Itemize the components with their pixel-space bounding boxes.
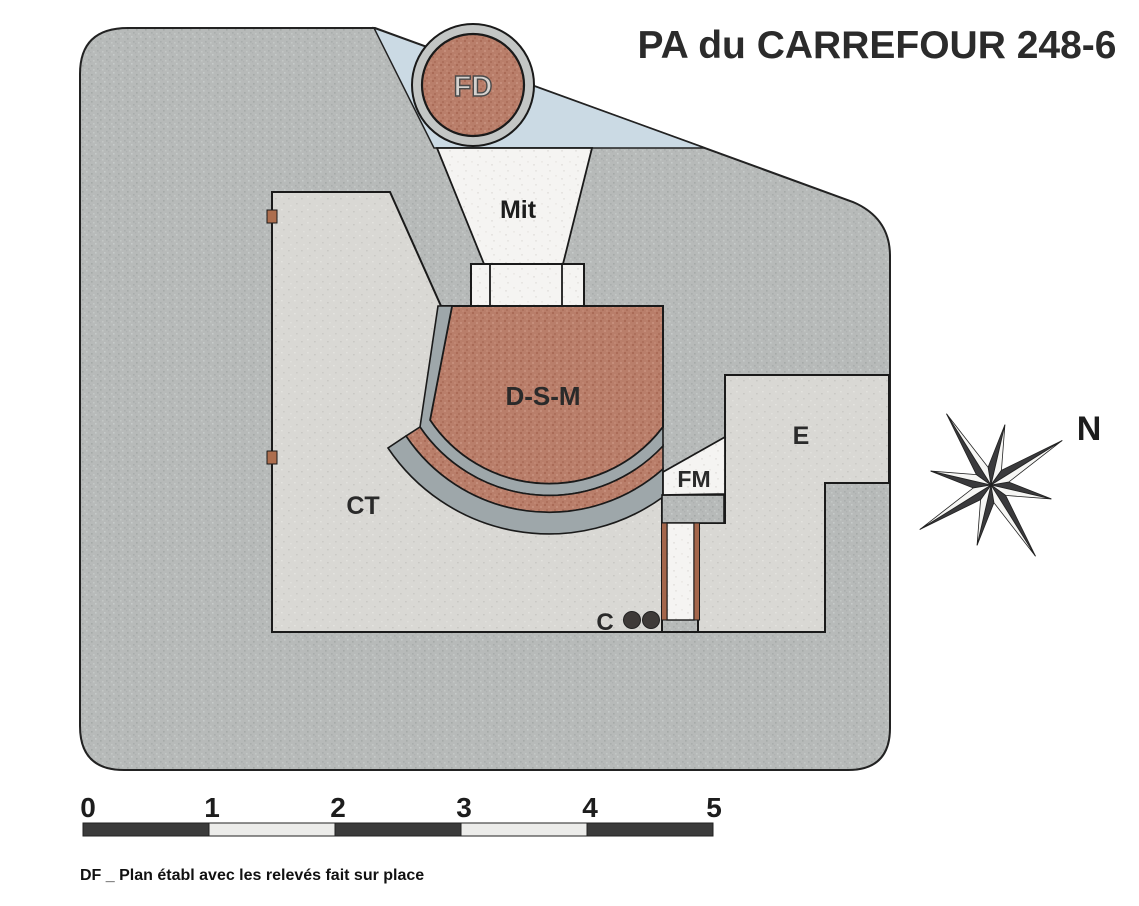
turret-assembly: [471, 264, 584, 306]
scale-tick-1: 1: [204, 792, 220, 823]
fd-label: FD: [454, 71, 493, 103]
corridor: [662, 523, 700, 632]
corridor-wall-left: [662, 523, 668, 620]
wall-fitting-2: [267, 451, 277, 464]
plan-page: FD Mit D-S-M CT FM E C N: [0, 0, 1139, 906]
ct-label: CT: [346, 492, 379, 520]
scale-bar: 0 1 2 3 4 5: [80, 792, 722, 836]
fm-block: [662, 495, 724, 523]
dsm-label: D-S-M: [505, 381, 580, 411]
vent-dot-2: [643, 612, 660, 629]
c-label: C: [596, 609, 613, 636]
fm-label: FM: [677, 466, 710, 492]
north-label: N: [1077, 410, 1102, 448]
page-title: PA du CARREFOUR 248-6: [638, 24, 1117, 67]
fd-cupola: FD: [412, 24, 534, 146]
compass-long-points: [875, 369, 1106, 600]
e-label: E: [793, 422, 810, 450]
compass-rose: [875, 369, 1106, 600]
corridor-wall-right: [694, 523, 700, 620]
corridor-floor: [667, 523, 694, 620]
wall-fitting-1: [267, 210, 277, 223]
scale-tick-2: 2: [330, 792, 346, 823]
bunker-plan-drawing: FD Mit D-S-M CT FM E C N: [0, 0, 1139, 906]
plan-caption: DF _ Plan établ avec les relevés fait su…: [80, 867, 424, 884]
scale-tick-0: 0: [80, 792, 96, 823]
scale-tick-5: 5: [706, 792, 722, 823]
scale-tick-3: 3: [456, 792, 472, 823]
scale-tick-4: 4: [582, 792, 598, 823]
mit-label: Mit: [500, 196, 537, 224]
vent-dot-1: [624, 612, 641, 629]
